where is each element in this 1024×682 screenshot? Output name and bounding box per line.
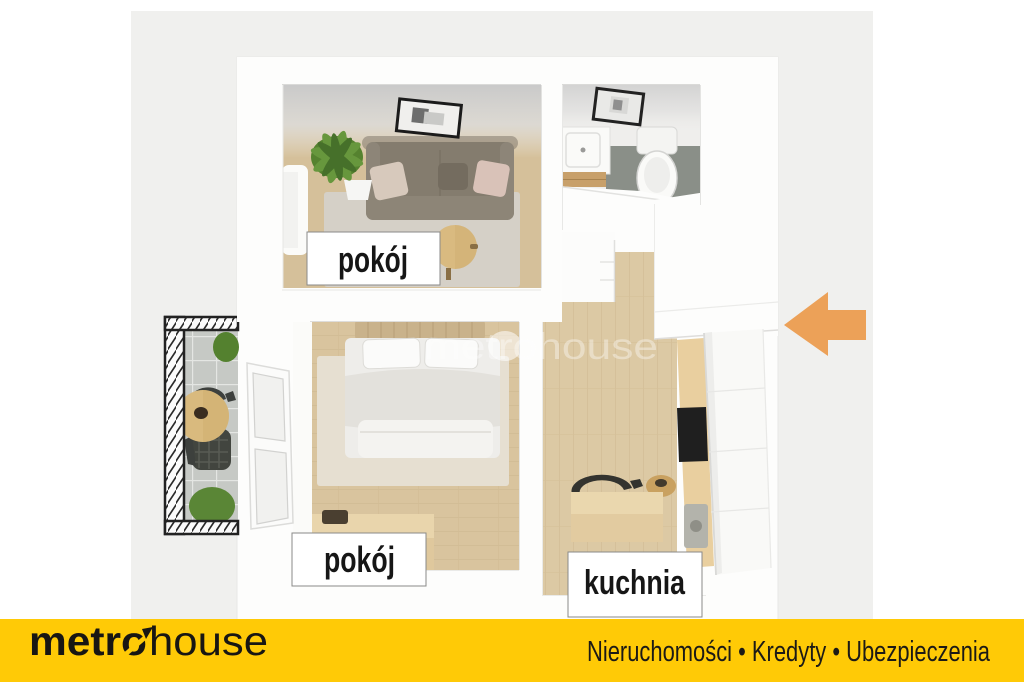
svg-text:house: house xyxy=(149,618,268,664)
svg-text:pokój: pokój xyxy=(338,239,408,280)
svg-text:kuchnia: kuchnia xyxy=(584,564,686,602)
svg-text:pokój: pokój xyxy=(324,539,395,580)
svg-text:metro: metro xyxy=(29,618,147,664)
svg-text:metrohouse: metrohouse xyxy=(424,326,658,367)
svg-text:Nieruchomości • Kredyty • Ubez: Nieruchomości • Kredyty • Ubezpieczenia xyxy=(587,636,991,668)
